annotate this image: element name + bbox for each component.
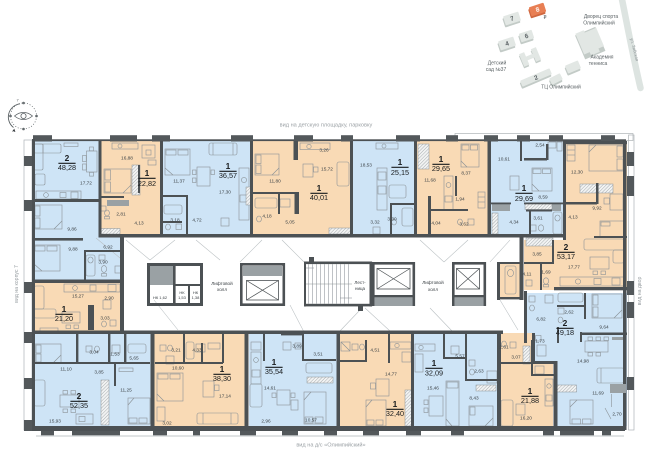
- svg-text:2,62: 2,62: [564, 310, 574, 316]
- svg-text:Олимпийский: Олимпийский: [583, 20, 615, 27]
- svg-text:1: 1: [62, 304, 67, 314]
- svg-text:53,17: 53,17: [557, 252, 575, 261]
- svg-text:3,85: 3,85: [94, 370, 104, 376]
- svg-text:22,82: 22,82: [138, 179, 156, 188]
- svg-text:1: 1: [432, 358, 437, 368]
- svg-text:1: 1: [220, 364, 225, 374]
- svg-text:вид на д/с «Олимпийский»: вид на д/с «Олимпийский»: [296, 442, 365, 449]
- svg-text:1: 1: [439, 154, 444, 164]
- svg-text:НК 1,62: НК 1,62: [153, 295, 168, 300]
- svg-text:3,62: 3,62: [459, 222, 469, 228]
- svg-text:2,81: 2,81: [116, 212, 126, 218]
- svg-text:4,04: 4,04: [431, 221, 441, 227]
- svg-text:11,80: 11,80: [269, 179, 281, 185]
- svg-text:4,34: 4,34: [509, 220, 519, 226]
- svg-text:16,20: 16,20: [520, 416, 532, 422]
- svg-text:1: 1: [398, 157, 403, 167]
- svg-text:5,05: 5,05: [285, 220, 295, 226]
- svg-text:3,61: 3,61: [533, 216, 543, 222]
- svg-text:4,33: 4,33: [192, 348, 202, 354]
- svg-text:6,82: 6,82: [536, 317, 546, 323]
- svg-text:вид на детскую площадку, парко: вид на детскую площадку, парковку: [280, 123, 373, 129]
- svg-text:11,25: 11,25: [120, 388, 132, 394]
- svg-text:3,51: 3,51: [313, 352, 323, 358]
- svg-text:8,37: 8,37: [461, 171, 471, 177]
- svg-text:холл: холл: [217, 287, 227, 292]
- svg-text:12,30: 12,30: [571, 170, 583, 176]
- svg-text:Лифтовой: Лифтовой: [422, 279, 444, 285]
- svg-text:15,93: 15,93: [49, 419, 61, 425]
- svg-text:17,77: 17,77: [568, 265, 580, 271]
- svg-text:9,88: 9,88: [68, 247, 78, 253]
- svg-text:11,10: 11,10: [60, 367, 72, 373]
- svg-text:17,72: 17,72: [80, 181, 92, 187]
- svg-text:3,85: 3,85: [532, 252, 542, 258]
- svg-text:3,89: 3,89: [292, 344, 302, 350]
- svg-text:15,46: 15,46: [427, 386, 439, 392]
- svg-text:3,90: 3,90: [98, 260, 108, 266]
- svg-text:1: 1: [272, 357, 277, 367]
- svg-text:6,92: 6,92: [103, 245, 113, 251]
- svg-text:18,53: 18,53: [360, 163, 372, 169]
- svg-text:1,38: 1,38: [192, 295, 201, 300]
- svg-text:3,30: 3,30: [387, 217, 397, 223]
- svg-text:1: 1: [528, 386, 533, 396]
- svg-text:10,60: 10,60: [172, 366, 184, 372]
- svg-text:4,72: 4,72: [192, 218, 202, 224]
- svg-text:8,59: 8,59: [538, 195, 548, 201]
- svg-text:холл: холл: [428, 287, 438, 292]
- svg-text:3,32: 3,32: [370, 220, 380, 226]
- svg-text:Дворец спорта: Дворец спорта: [584, 14, 618, 20]
- svg-text:1,94: 1,94: [455, 197, 465, 203]
- svg-text:2: 2: [563, 318, 568, 328]
- svg-text:ница: ница: [355, 286, 366, 291]
- svg-text:2: 2: [564, 242, 569, 252]
- svg-text:2,54: 2,54: [535, 143, 545, 149]
- svg-text:29,69: 29,69: [515, 194, 533, 203]
- svg-text:4,13: 4,13: [134, 221, 144, 227]
- svg-text:16,88: 16,88: [121, 156, 133, 162]
- svg-text:21,20: 21,20: [55, 314, 73, 323]
- svg-text:2,70: 2,70: [612, 412, 622, 418]
- svg-text:14,98: 14,98: [577, 359, 589, 365]
- svg-text:4,51: 4,51: [370, 348, 380, 354]
- svg-text:Лифтовой: Лифтовой: [211, 280, 233, 286]
- svg-text:8,43: 8,43: [469, 396, 479, 402]
- svg-text:15,72: 15,72: [321, 167, 333, 173]
- svg-text:11,69: 11,69: [592, 391, 604, 397]
- svg-text:5,57: 5,57: [455, 354, 465, 360]
- svg-text:3,18: 3,18: [170, 218, 180, 224]
- svg-text:2,63: 2,63: [474, 369, 484, 375]
- svg-text:17,30: 17,30: [219, 190, 231, 196]
- svg-text:14,61: 14,61: [264, 386, 276, 392]
- svg-text:1: 1: [145, 168, 150, 178]
- svg-text:3,03: 3,03: [100, 316, 110, 322]
- svg-text:36,57: 36,57: [219, 171, 237, 180]
- svg-text:1,53: 1,53: [178, 295, 187, 300]
- svg-text:21,88: 21,88: [521, 396, 539, 405]
- svg-text:4,11: 4,11: [523, 272, 532, 278]
- svg-text:1: 1: [226, 161, 231, 171]
- svg-text:2,90: 2,90: [104, 296, 114, 302]
- svg-text:29,65: 29,65: [432, 164, 450, 173]
- svg-text:52,35: 52,35: [70, 401, 88, 410]
- svg-text:ТЦ Олимпийский: ТЦ Олимпийский: [541, 84, 581, 91]
- svg-text:4,18: 4,18: [262, 214, 272, 220]
- svg-text:Академия: Академия: [590, 55, 613, 61]
- svg-text:10,61: 10,61: [498, 157, 510, 163]
- svg-text:5,65: 5,65: [129, 356, 139, 362]
- svg-text:1: 1: [393, 399, 398, 409]
- svg-text:Детский: Детский: [488, 60, 507, 67]
- svg-text:35,54: 35,54: [265, 367, 283, 376]
- svg-text:4,13: 4,13: [568, 215, 578, 221]
- svg-text:32,09: 32,09: [425, 369, 443, 378]
- svg-text:2,61: 2,61: [499, 345, 509, 351]
- svg-text:тенниса: тенниса: [589, 61, 608, 67]
- svg-text:3,26: 3,26: [319, 148, 329, 154]
- svg-text:14,77: 14,77: [385, 372, 397, 378]
- svg-text:10,57: 10,57: [305, 418, 317, 424]
- svg-text:1,73: 1,73: [535, 339, 545, 345]
- svg-text:2: 2: [65, 153, 70, 163]
- svg-text:3,02: 3,02: [162, 421, 172, 427]
- svg-text:9,64: 9,64: [599, 325, 609, 331]
- svg-text:38,30: 38,30: [213, 374, 231, 383]
- svg-text:9,92: 9,92: [592, 206, 602, 212]
- svg-text:вид на корпус 7: вид на корпус 7: [14, 265, 20, 303]
- svg-text:Лест-: Лест-: [354, 280, 366, 285]
- svg-text:11,68: 11,68: [424, 178, 436, 184]
- svg-text:3,07: 3,07: [511, 355, 521, 361]
- svg-text:17,14: 17,14: [219, 394, 231, 400]
- svg-text:3,04: 3,04: [89, 350, 99, 356]
- svg-text:2,96: 2,96: [261, 419, 271, 425]
- svg-text:сад №37: сад №37: [486, 67, 507, 73]
- svg-text:25,15: 25,15: [391, 168, 409, 177]
- svg-text:1,69: 1,69: [541, 270, 551, 276]
- svg-text:вид на двор: вид на двор: [637, 276, 643, 305]
- svg-text:11,37: 11,37: [173, 179, 185, 185]
- svg-text:9,86: 9,86: [67, 227, 77, 233]
- svg-text:32,40: 32,40: [386, 409, 404, 418]
- svg-text:1: 1: [522, 183, 527, 193]
- svg-text:40,01: 40,01: [310, 193, 328, 202]
- svg-text:1,53: 1,53: [110, 352, 120, 358]
- svg-text:3,21: 3,21: [171, 348, 181, 354]
- svg-text:15,27: 15,27: [72, 294, 84, 300]
- svg-text:1: 1: [317, 183, 322, 193]
- svg-text:2: 2: [77, 391, 82, 401]
- svg-text:48,28: 48,28: [58, 163, 76, 172]
- svg-text:49,18: 49,18: [556, 328, 574, 337]
